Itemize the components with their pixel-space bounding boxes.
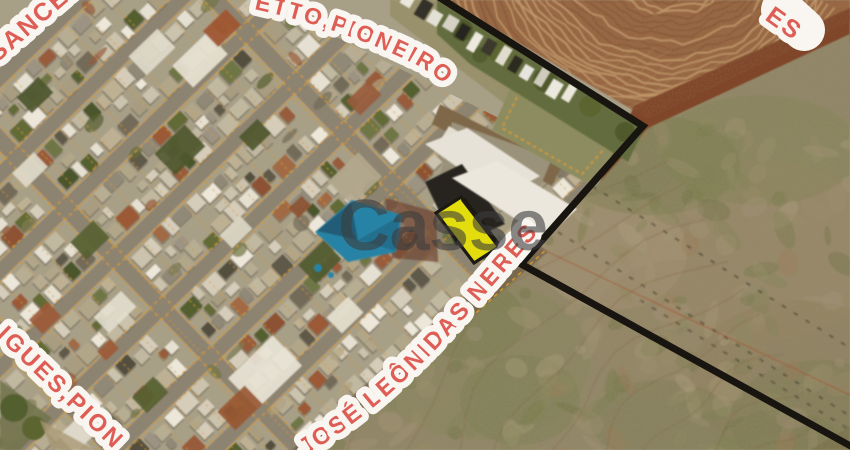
svg-text:Casse: Casse bbox=[338, 186, 548, 266]
